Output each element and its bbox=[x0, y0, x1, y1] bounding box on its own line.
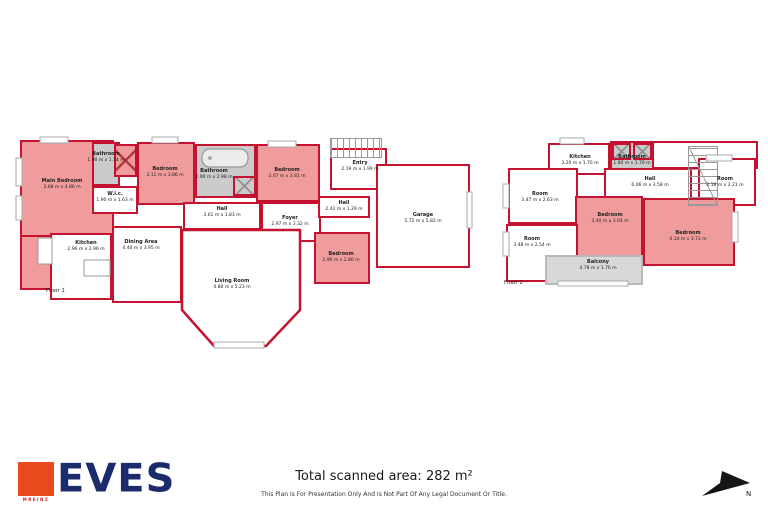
label-foyer: Foyer2.97 m x 3.32 m bbox=[271, 215, 308, 227]
label-entry: Entry2.19 m x 1.99 m bbox=[341, 160, 378, 172]
label-room-upper-right: Room2.18 m x 2.21 m bbox=[706, 176, 743, 188]
label-dining-area: Dining Area4.40 m x 3.95 m bbox=[122, 239, 159, 251]
floor1-label: Floor 1 bbox=[46, 288, 65, 294]
total-scanned-area: Total scanned area: 282 m² bbox=[0, 469, 768, 484]
stairs-floor1-icon bbox=[330, 138, 382, 158]
label-garage: Garage5.72 m x 5.82 m bbox=[404, 212, 441, 224]
label-bathroom-2: Bathroom1.80 m x 1.79 m bbox=[613, 154, 650, 166]
floorplan-page: Main Bedroom3.68 m x 4.86 m Bathroom1.90… bbox=[0, 0, 768, 512]
label-bedroom-a: Bedroom3.11 m x 3.86 m bbox=[146, 166, 183, 178]
label-bathroom-small: Bathroom1.90 m x 1.14 m bbox=[87, 151, 124, 163]
label-bathroom-main: Bathroom2.90 m x 2.98 m bbox=[195, 168, 232, 180]
label-hall-2: Hall2.42 m x 1.29 m bbox=[325, 200, 362, 212]
label-hall-3: Hall6.06 m x 3.58 m bbox=[631, 176, 668, 188]
floor2-label: Floor 2 bbox=[504, 280, 523, 286]
shower-cell-2-icon bbox=[233, 176, 256, 196]
room-dining-area bbox=[112, 226, 182, 303]
north-arrow-icon: N bbox=[700, 469, 756, 499]
disclaimer-text: This Plan Is For Presentation Only And I… bbox=[0, 491, 768, 498]
label-wic: W.i.c.1.90 m x 1.63 m bbox=[96, 191, 133, 203]
north-label: N bbox=[746, 490, 751, 498]
label-hall-1: Hall3.61 m x 1.83 m bbox=[203, 206, 240, 218]
label-balcony: Balcony4.78 m x 1.76 m bbox=[579, 259, 616, 271]
label-living-room: Living Room4.80 m x 5.23 m bbox=[213, 278, 250, 290]
label-room-lower-left: Room3.48 m x 2.54 m bbox=[513, 236, 550, 248]
label-bedroom-c: Bedroom2.90 m x 2.80 m bbox=[322, 251, 359, 263]
label-main-bedroom: Main Bedroom3.68 m x 4.86 m bbox=[42, 178, 83, 190]
north-arrow-shape bbox=[702, 471, 750, 496]
room-bedroom-d bbox=[575, 196, 643, 258]
label-bedroom-b: Bedroom3.07 m x 3.81 m bbox=[268, 167, 305, 179]
label-bedroom-e: Bedroom4.14 m x 3.73 m bbox=[669, 230, 706, 242]
room-main-bedroom-extension bbox=[20, 235, 52, 290]
label-kitchen: Kitchen2.96 m x 2.96 m bbox=[67, 240, 104, 252]
label-room-upper-left: Room3.47 m x 2.63 m bbox=[521, 191, 558, 203]
label-bedroom-d: Bedroom3.40 m x 3.04 m bbox=[591, 212, 628, 224]
label-kitchen-2: Kitchen3.20 m x 1.76 m bbox=[561, 154, 598, 166]
